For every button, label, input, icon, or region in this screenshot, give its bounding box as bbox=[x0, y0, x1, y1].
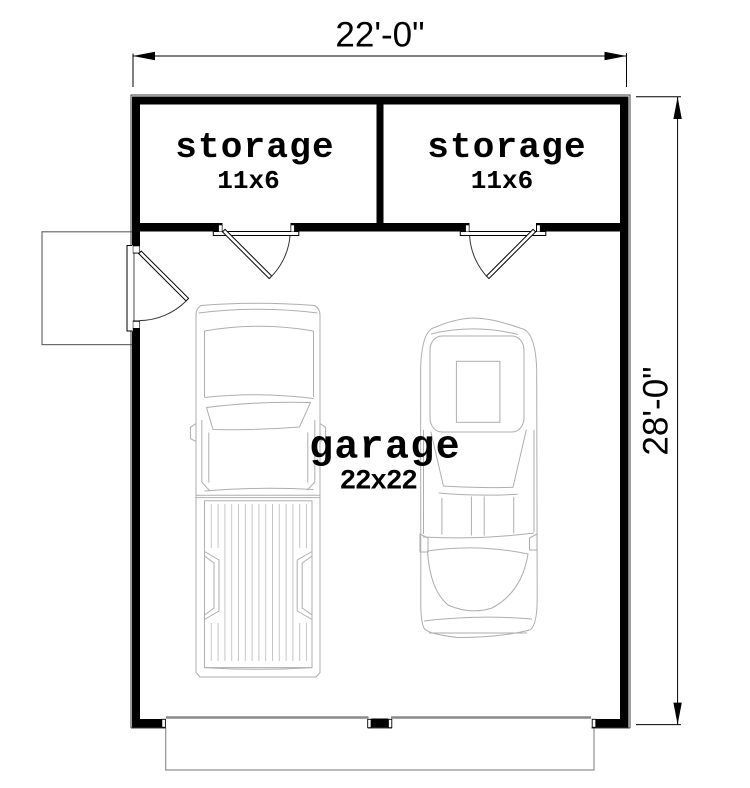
svg-text:11x6: 11x6 bbox=[471, 166, 533, 196]
svg-text:garage: garage bbox=[309, 426, 461, 471]
svg-text:11x6: 11x6 bbox=[217, 166, 279, 196]
svg-text:22x22: 22x22 bbox=[339, 467, 417, 498]
svg-text:28'-0": 28'-0" bbox=[637, 366, 676, 455]
svg-text:storage: storage bbox=[427, 127, 587, 168]
svg-text:storage: storage bbox=[175, 127, 335, 168]
svg-text:22'-0": 22'-0" bbox=[335, 16, 424, 55]
